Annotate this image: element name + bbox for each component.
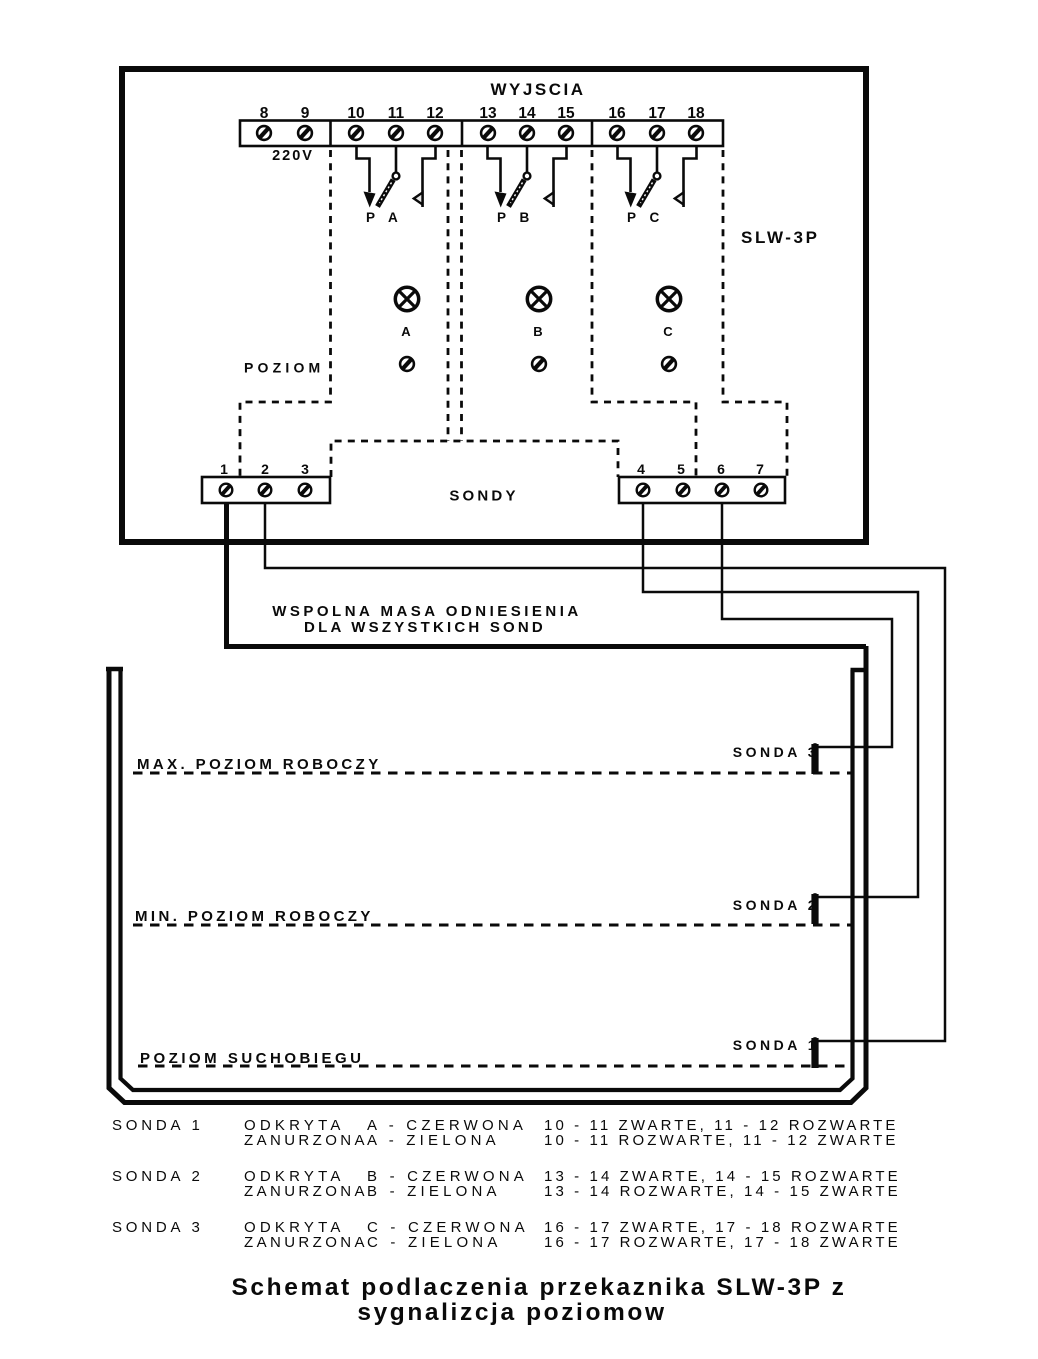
svg-text:WYJSCIA: WYJSCIA [491,80,586,99]
svg-text:B - ZIELONA: B - ZIELONA [367,1183,501,1200]
svg-text:ZANURZONA: ZANURZONA [244,1132,368,1149]
svg-text:2: 2 [261,461,269,477]
svg-text:WSPOLNA MASA ODNIESIENIA: WSPOLNA MASA ODNIESIENIA [272,603,582,620]
svg-text:P C: P C [627,210,664,225]
svg-text:10: 10 [347,105,364,122]
svg-text:12: 12 [426,105,443,122]
svg-text:9: 9 [301,105,310,122]
svg-text:DLA WSZYSTKICH SOND: DLA WSZYSTKICH SOND [304,619,546,636]
svg-text:C - ZIELONA: C - ZIELONA [367,1234,502,1251]
svg-text:SONDA 3: SONDA 3 [733,744,819,760]
svg-text:ZANURZONA: ZANURZONA [244,1234,368,1251]
svg-text:B: B [533,324,542,339]
svg-text:6: 6 [717,461,725,477]
svg-text:POZIOM SUCHOBIEGU: POZIOM SUCHOBIEGU [140,1050,365,1067]
svg-text:10 - 11 ROZWARTE, 11 - 12 ZWAR: 10 - 11 ROZWARTE, 11 - 12 ZWARTE [544,1132,899,1149]
svg-text:15: 15 [557,105,575,122]
svg-text:220V: 220V [272,148,314,164]
svg-text:4: 4 [637,461,645,477]
svg-text:16: 16 [608,105,626,122]
svg-text:SONDA 1: SONDA 1 [112,1117,204,1134]
svg-text:13 - 14 ROZWARTE, 14 - 15 ZWAR: 13 - 14 ROZWARTE, 14 - 15 ZWARTE [544,1183,901,1200]
svg-text:1: 1 [220,461,228,477]
svg-text:17: 17 [648,105,665,122]
svg-text:13: 13 [479,105,497,122]
svg-text:POZIOM: POZIOM [244,360,324,376]
svg-text:SLW-3P: SLW-3P [741,228,820,247]
svg-text:ZANURZONA: ZANURZONA [244,1183,368,1200]
svg-text:Schemat podlaczenia przekaznik: Schemat podlaczenia przekaznika SLW-3P z [231,1274,846,1301]
svg-text:SONDA 1: SONDA 1 [733,1037,819,1053]
svg-text:3: 3 [301,461,309,477]
svg-text:P A: P A [366,210,403,225]
svg-text:MAX. POZIOM ROBOCZY: MAX. POZIOM ROBOCZY [137,756,382,773]
svg-text:5: 5 [677,461,685,477]
svg-text:P B: P B [497,210,534,225]
svg-text:C: C [663,324,673,339]
svg-text:SONDA 2: SONDA 2 [112,1168,204,1185]
svg-text:SONDA 3: SONDA 3 [112,1219,204,1236]
svg-text:7: 7 [756,461,764,477]
svg-text:18: 18 [687,105,705,122]
svg-text:SONDY: SONDY [449,488,518,505]
svg-text:14: 14 [518,105,536,122]
svg-text:A - ZIELONA: A - ZIELONA [367,1132,500,1149]
svg-text:A: A [401,324,411,339]
svg-text:MIN. POZIOM ROBOCZY: MIN. POZIOM ROBOCZY [135,908,374,925]
svg-text:SONDA 2: SONDA 2 [733,897,819,913]
svg-text:8: 8 [260,105,269,122]
svg-text:sygnalizcja poziomow: sygnalizcja poziomow [357,1299,666,1326]
svg-text:11: 11 [388,105,405,122]
svg-text:16 - 17 ROZWARTE, 17 - 18 ZWAR: 16 - 17 ROZWARTE, 17 - 18 ZWARTE [544,1234,901,1251]
